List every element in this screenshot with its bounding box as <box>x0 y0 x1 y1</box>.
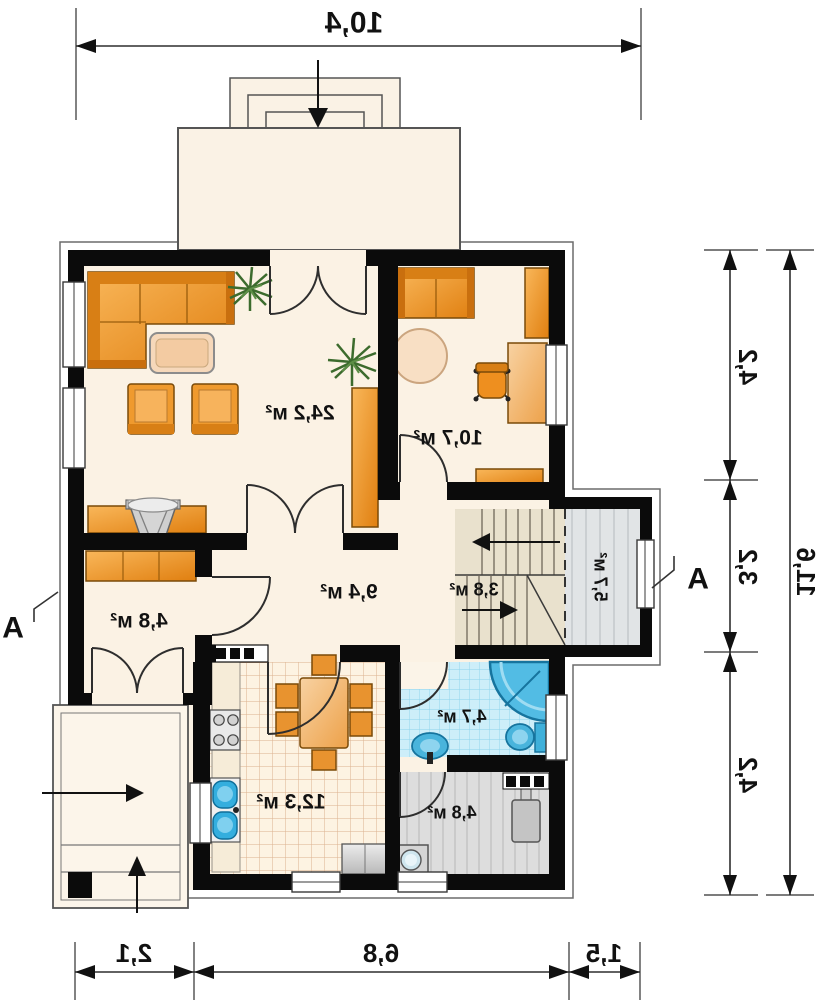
stove <box>210 710 240 750</box>
window-storage <box>637 540 654 608</box>
window-utility-bottom <box>398 872 447 892</box>
room-label-living: 24,2 м² <box>265 401 334 424</box>
porch <box>42 705 188 913</box>
office-chair <box>474 363 511 402</box>
dimension-right-segments: 4,2 3,2 4,2 <box>704 250 763 895</box>
stairs-floor <box>455 509 565 645</box>
dining-chair <box>312 750 336 770</box>
wardrobe-entry <box>86 551 196 581</box>
section-letter-left: A <box>2 612 24 645</box>
floor-plan-drawing: 24,2 м² 10,7 м² 9,4 м² 4,8 м² 3,8 м² 5,7… <box>0 0 818 1000</box>
dim-bottom-right: 1,5 <box>586 938 622 968</box>
room-label-utility: 4,8 м² <box>427 802 476 822</box>
sofa-bedroom <box>398 268 474 318</box>
window-bedroom <box>546 345 567 425</box>
desk <box>508 343 547 423</box>
wardrobe-bedroom <box>525 268 549 338</box>
section-letter-right: A <box>687 563 709 596</box>
coffee-table <box>150 333 214 373</box>
dim-top-total: 10,4 <box>324 7 383 40</box>
armchair-2 <box>192 384 238 434</box>
dining-chair <box>312 655 336 675</box>
dim-bottom-left: 2,1 <box>116 938 152 968</box>
floor-plan-page: 24,2 м² 10,7 м² 9,4 м² 4,8 м² 3,8 м² 5,7… <box>0 0 818 1000</box>
dim-right-bottom: 4,2 <box>733 757 763 793</box>
dim-right-top: 4,2 <box>733 349 763 385</box>
window-living-2 <box>63 388 85 468</box>
shelf-living <box>352 388 378 527</box>
armchair-1 <box>128 384 174 434</box>
fridge <box>342 844 388 874</box>
section-marker-left: A <box>2 592 58 645</box>
toilet <box>506 723 547 752</box>
room-label-stairs: 3,8 м² <box>449 579 498 599</box>
window-kitchen-side <box>190 783 211 843</box>
window-kitchen-bottom <box>292 872 340 892</box>
window-bathroom <box>546 695 567 760</box>
rug-round <box>393 329 447 383</box>
dining-chair <box>350 684 372 708</box>
dimension-bottom: 2,1 6,8 1,5 <box>75 938 640 1000</box>
dining-chair <box>276 684 298 708</box>
terrace <box>178 60 460 250</box>
dining-chair <box>350 712 372 736</box>
dim-right-overall: 11,6 <box>791 547 818 596</box>
terrace-deck <box>178 128 460 250</box>
room-label-bathroom: 4,7 м² <box>437 706 486 726</box>
dimension-right-total: 11,6 <box>766 250 818 895</box>
kitchen-sink <box>210 778 240 842</box>
dim-right-middle: 3,2 <box>733 549 763 585</box>
window-living-1 <box>63 282 85 367</box>
room-label-bedroom: 10,7 м² <box>413 426 482 449</box>
room-label-kitchen: 12,3 м² <box>256 790 325 813</box>
porch-corner-pillar <box>68 872 92 898</box>
room-label-hall: 9,4 м² <box>320 580 378 603</box>
room-label-storage: 5,7 м² <box>591 552 611 601</box>
room-label-entry: 4,8 м² <box>110 609 168 632</box>
dining-table <box>300 678 348 748</box>
dim-bottom-middle: 6,8 <box>363 938 399 968</box>
